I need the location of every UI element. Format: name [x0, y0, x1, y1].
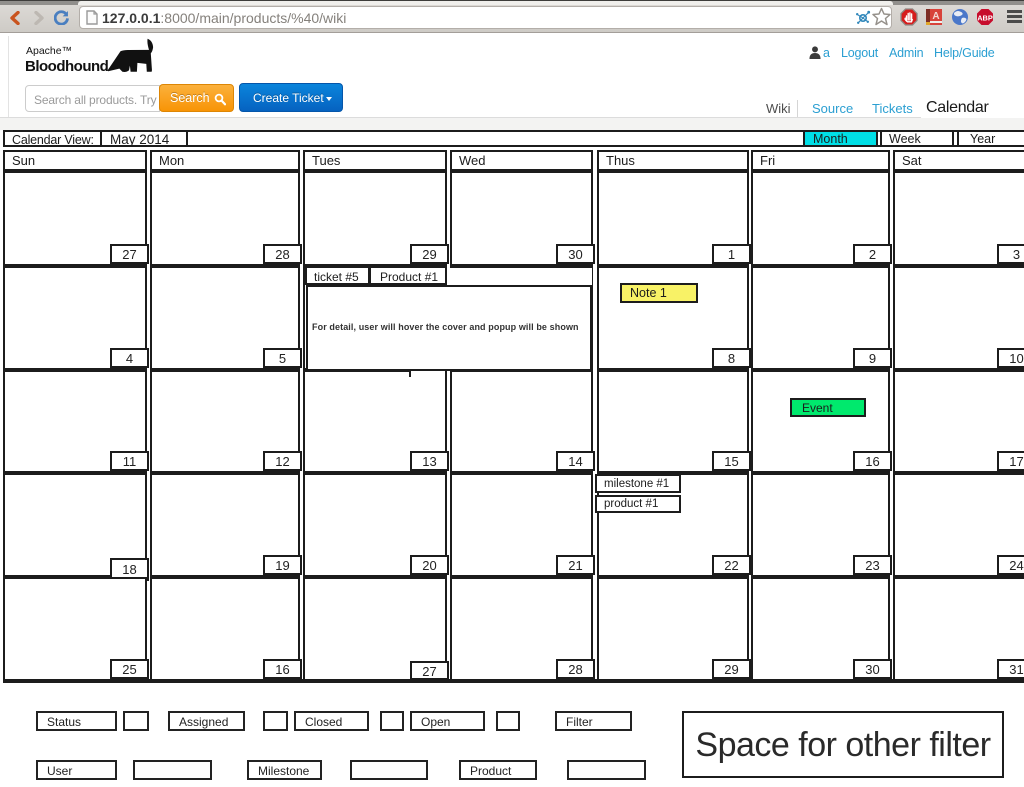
svg-text:A: A — [932, 11, 939, 22]
svg-text:ABP: ABP — [977, 13, 993, 22]
